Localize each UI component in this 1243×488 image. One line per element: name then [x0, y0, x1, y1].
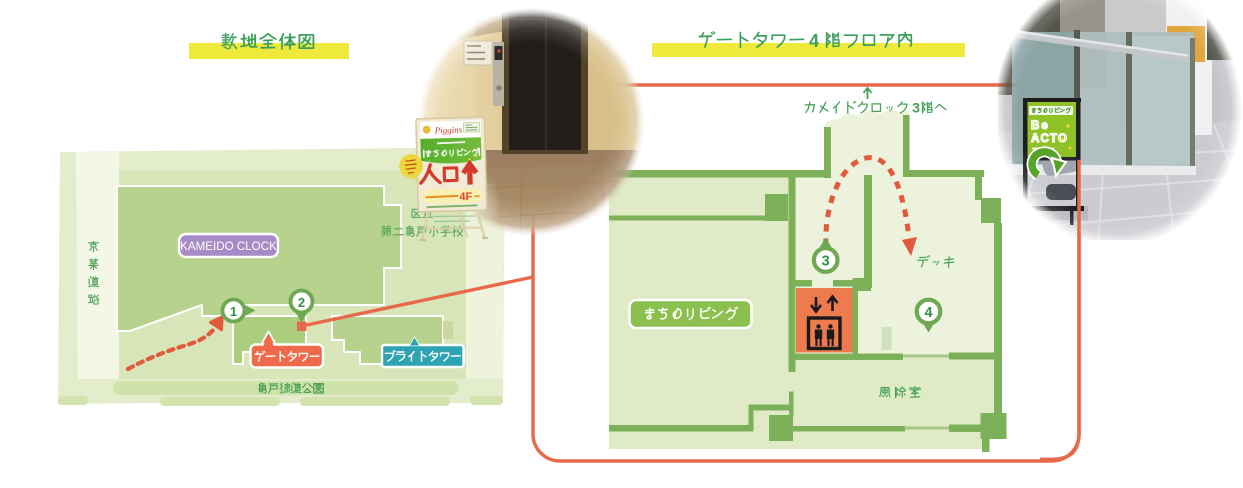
svg-text:1: 1: [230, 304, 237, 319]
svg-text:3: 3: [822, 254, 830, 270]
svg-text:4: 4: [809, 31, 819, 51]
svg-text:3: 3: [912, 100, 920, 116]
svg-text:KAMEIDO CLOCK: KAMEIDO CLOCK: [180, 240, 277, 253]
svg-text:4F: 4F: [459, 191, 472, 203]
svg-text:Piggins: Piggins: [434, 125, 463, 136]
svg-text:2: 2: [298, 295, 305, 310]
svg-text:4: 4: [924, 305, 932, 321]
svg-text:Be: Be: [1031, 120, 1050, 132]
